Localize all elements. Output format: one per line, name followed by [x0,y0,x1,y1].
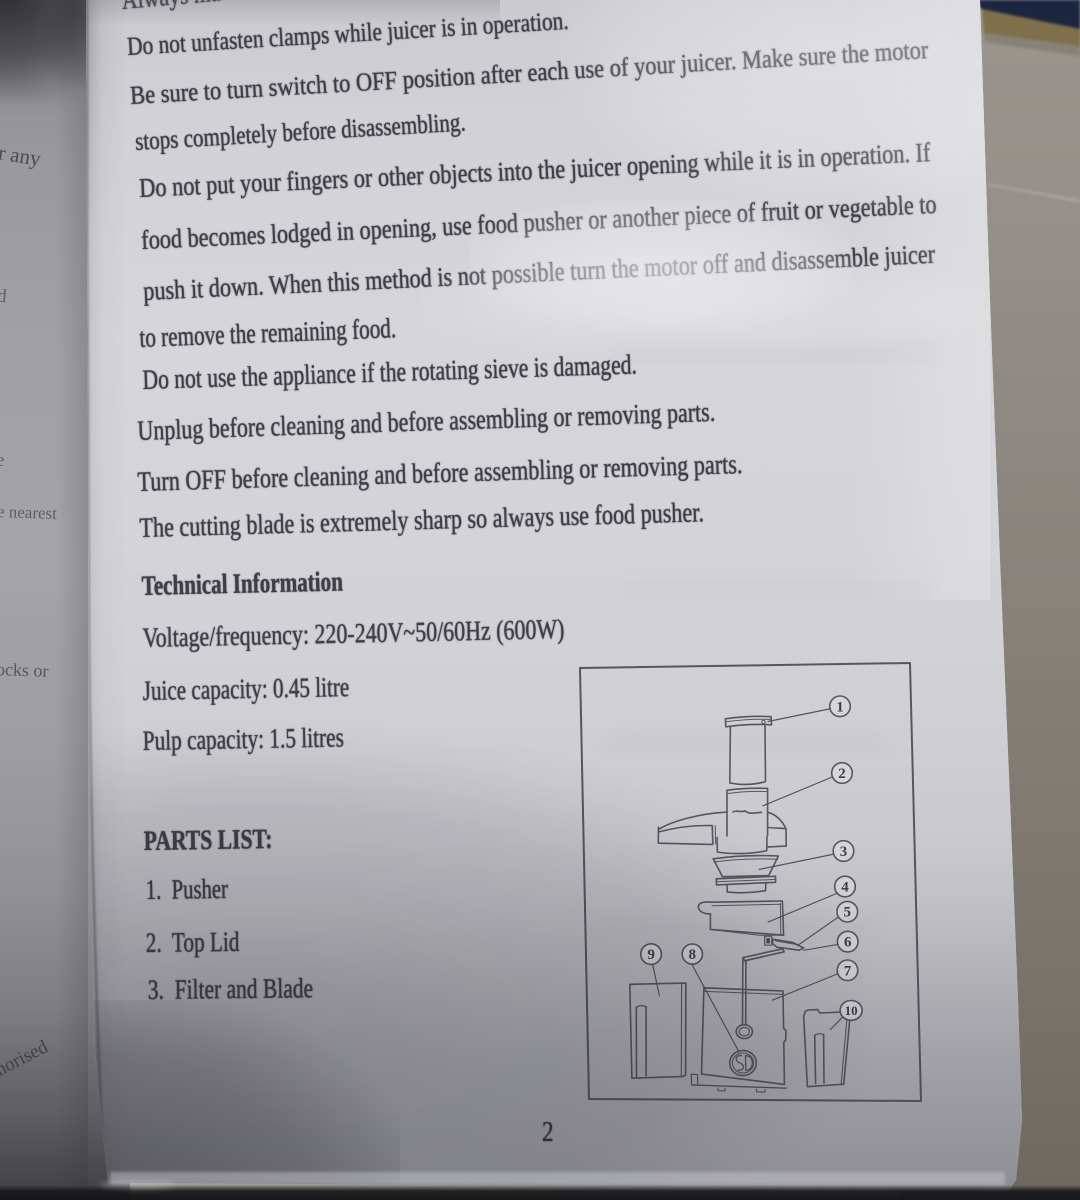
svg-text:1: 1 [836,699,844,715]
